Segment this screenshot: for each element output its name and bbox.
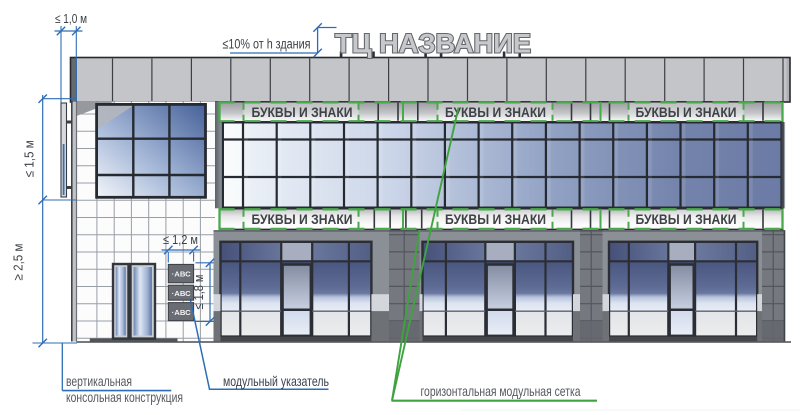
svg-text:≤ 1,2 м: ≤ 1,2 м (163, 232, 198, 247)
svg-text:БУКВЫ И ЗНАКИ: БУКВЫ И ЗНАКИ (636, 212, 737, 227)
svg-text:≤10% от h здания: ≤10% от h здания (223, 37, 311, 52)
svg-text:≤ 1,5 м: ≤ 1,5 м (22, 140, 37, 177)
svg-text:вертикальная: вертикальная (66, 373, 132, 389)
svg-text:≥ 2,5 м: ≥ 2,5 м (11, 243, 26, 280)
svg-text:БУКВЫ И ЗНАКИ: БУКВЫ И ЗНАКИ (636, 105, 737, 120)
svg-text:модульный указатель: модульный указатель (223, 373, 329, 389)
svg-text:ТЦ НАЗВАНИЕ: ТЦ НАЗВАНИЕ (335, 29, 531, 59)
svg-text:БУКВЫ И ЗНАКИ: БУКВЫ И ЗНАКИ (252, 105, 353, 120)
svg-text:БУКВЫ И ЗНАКИ: БУКВЫ И ЗНАКИ (252, 212, 353, 227)
svg-text:БУКВЫ И ЗНАКИ: БУКВЫ И ЗНАКИ (445, 105, 546, 120)
svg-text:≤ 1,0 м: ≤ 1,0 м (55, 11, 87, 26)
svg-text:≤ 1,8 м: ≤ 1,8 м (191, 274, 206, 309)
svg-text:·АВС: ·АВС (172, 308, 192, 317)
svg-text:БУКВЫ И ЗНАКИ: БУКВЫ И ЗНАКИ (445, 212, 546, 227)
svg-text:горизонтальная модульная сетка: горизонтальная модульная сетка (421, 383, 581, 399)
svg-text:·АВС: ·АВС (172, 270, 192, 279)
svg-text:·АВС: ·АВС (172, 289, 192, 298)
svg-text:консольная конструкция: консольная конструкция (66, 389, 183, 405)
